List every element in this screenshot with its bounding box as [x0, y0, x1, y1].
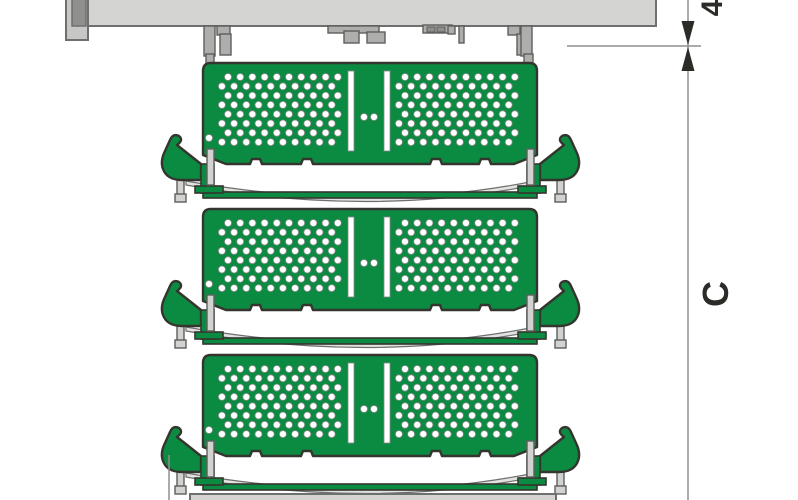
arrowhead-down [682, 21, 695, 45]
hanger-bracket-group-centre [423, 25, 464, 43]
mounting-rail-assembly [66, 0, 656, 63]
bottom-support-slab [190, 494, 556, 500]
hanger-bracket-group-centre-left [328, 26, 385, 43]
tray-level-1 [162, 63, 579, 202]
rail-end-cap-inner [72, 0, 86, 26]
tray-stack-technical-diagram: 4 C [0, 0, 798, 500]
tray-level-3 [162, 355, 579, 494]
arrowhead-up [682, 47, 695, 71]
diagram-stage: 4 C [0, 0, 798, 500]
hanger-bracket-group-right [508, 26, 533, 63]
tray-level-2 [162, 209, 579, 348]
dimension-label-total-height: C [695, 281, 736, 307]
tray-levels [162, 63, 579, 494]
dimension-label-tier-spacing: 4 [696, 0, 729, 16]
hanger-bracket-group-left [204, 26, 231, 63]
mounting-rail [71, 0, 656, 26]
